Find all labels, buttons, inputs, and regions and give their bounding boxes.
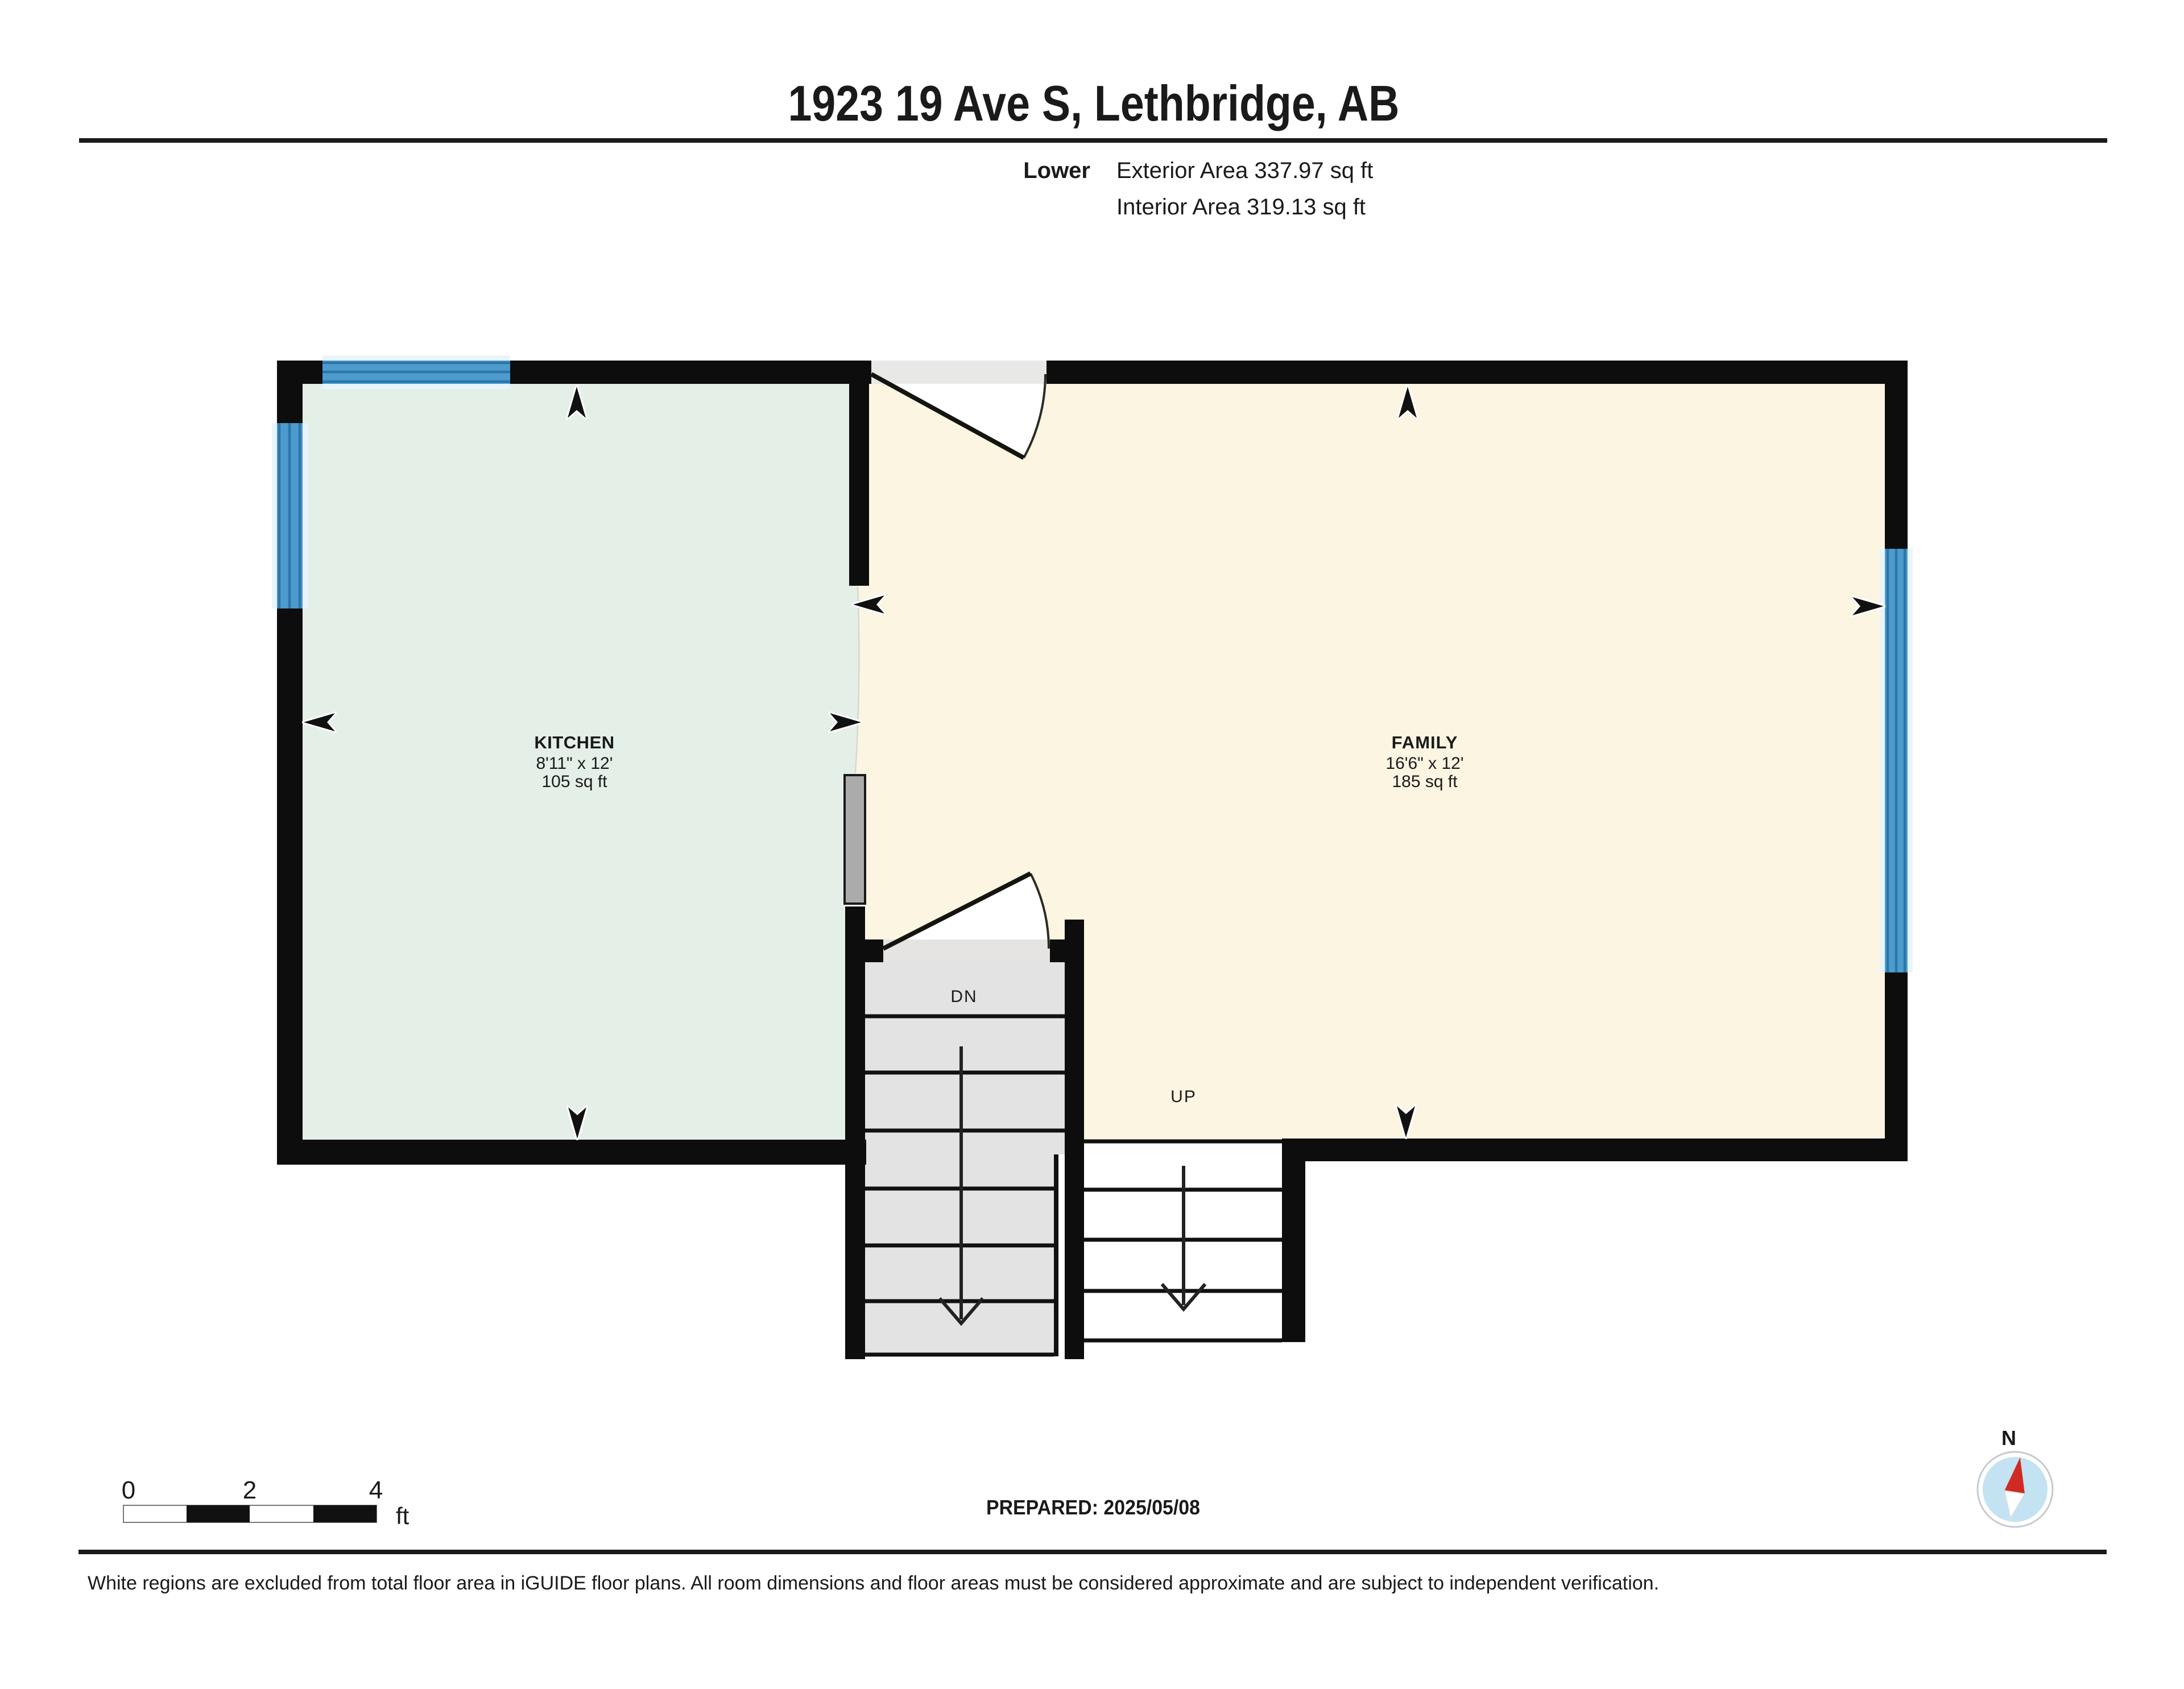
svg-text:UP: UP xyxy=(1170,1087,1197,1106)
svg-text:105 sq ft: 105 sq ft xyxy=(541,772,607,791)
svg-text:4: 4 xyxy=(369,1476,383,1504)
svg-text:185 sq ft: 185 sq ft xyxy=(1392,772,1458,791)
svg-text:DN: DN xyxy=(950,987,977,1006)
svg-text:N: N xyxy=(2001,1426,2016,1450)
svg-text:Exterior Area 337.97 sq ft: Exterior Area 337.97 sq ft xyxy=(1116,158,1373,183)
svg-text:2: 2 xyxy=(243,1476,257,1504)
svg-text:16'6" x 12': 16'6" x 12' xyxy=(1385,754,1463,773)
svg-text:Interior Area 319.13 sq ft: Interior Area 319.13 sq ft xyxy=(1116,194,1366,220)
svg-text:FAMILY: FAMILY xyxy=(1392,732,1458,752)
svg-text:Lower: Lower xyxy=(1023,158,1090,183)
svg-text:White regions are excluded fro: White regions are excluded from total fl… xyxy=(88,1572,1659,1594)
svg-text:1923 19 Ave S, Lethbridge, AB: 1923 19 Ave S, Lethbridge, AB xyxy=(788,75,1400,131)
svg-text:ft: ft xyxy=(396,1502,409,1529)
svg-text:PREPARED: 2025/05/08: PREPARED: 2025/05/08 xyxy=(986,1496,1200,1519)
svg-text:KITCHEN: KITCHEN xyxy=(534,732,614,752)
svg-text:8'11" x 12': 8'11" x 12' xyxy=(536,754,613,773)
svg-text:0: 0 xyxy=(122,1476,135,1504)
